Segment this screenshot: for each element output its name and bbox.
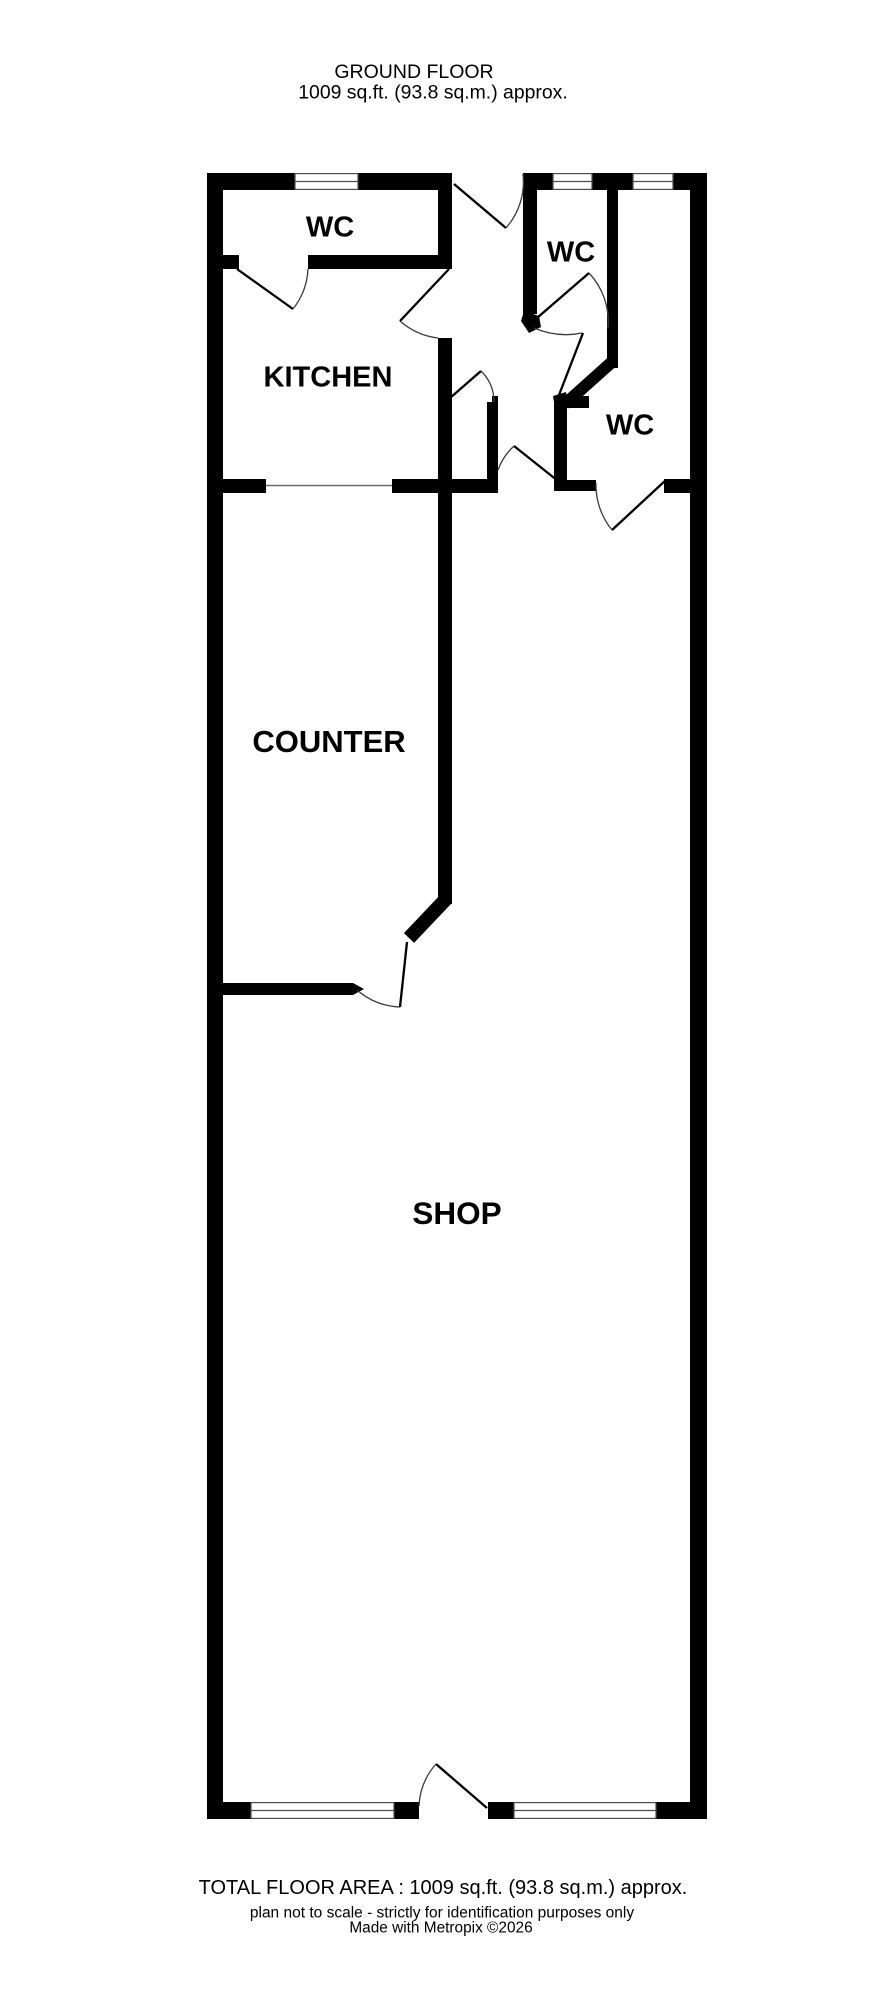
svg-text:TOTAL FLOOR AREA : 1009 sq.ft.: TOTAL FLOOR AREA : 1009 sq.ft. (93.8 sq.… xyxy=(199,1877,688,1899)
svg-text:WC: WC xyxy=(306,212,354,244)
svg-text:GROUND FLOOR: GROUND FLOOR xyxy=(334,61,493,83)
svg-text:1009 sq.ft. (93.8 sq.m.) appro: 1009 sq.ft. (93.8 sq.m.) approx. xyxy=(298,82,567,104)
svg-text:WC: WC xyxy=(606,409,654,441)
svg-text:WC: WC xyxy=(547,236,595,268)
svg-text:SHOP: SHOP xyxy=(412,1195,501,1231)
svg-text:Made with Metropix ©2026: Made with Metropix ©2026 xyxy=(349,1920,532,1937)
svg-text:COUNTER: COUNTER xyxy=(252,724,405,759)
svg-text:KITCHEN: KITCHEN xyxy=(264,362,393,394)
